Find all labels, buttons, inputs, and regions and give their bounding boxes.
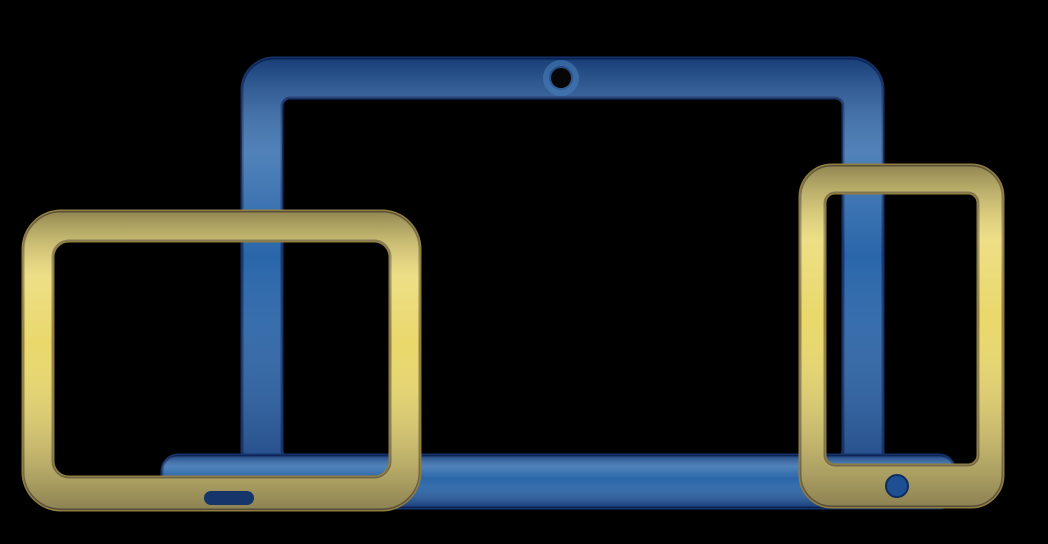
- phone-home-button: [886, 475, 908, 497]
- webcam-icon: [551, 68, 571, 88]
- devices-canvas: [0, 0, 1048, 544]
- devices-illustration: [0, 0, 1048, 544]
- tablet-home-slot: [204, 491, 254, 505]
